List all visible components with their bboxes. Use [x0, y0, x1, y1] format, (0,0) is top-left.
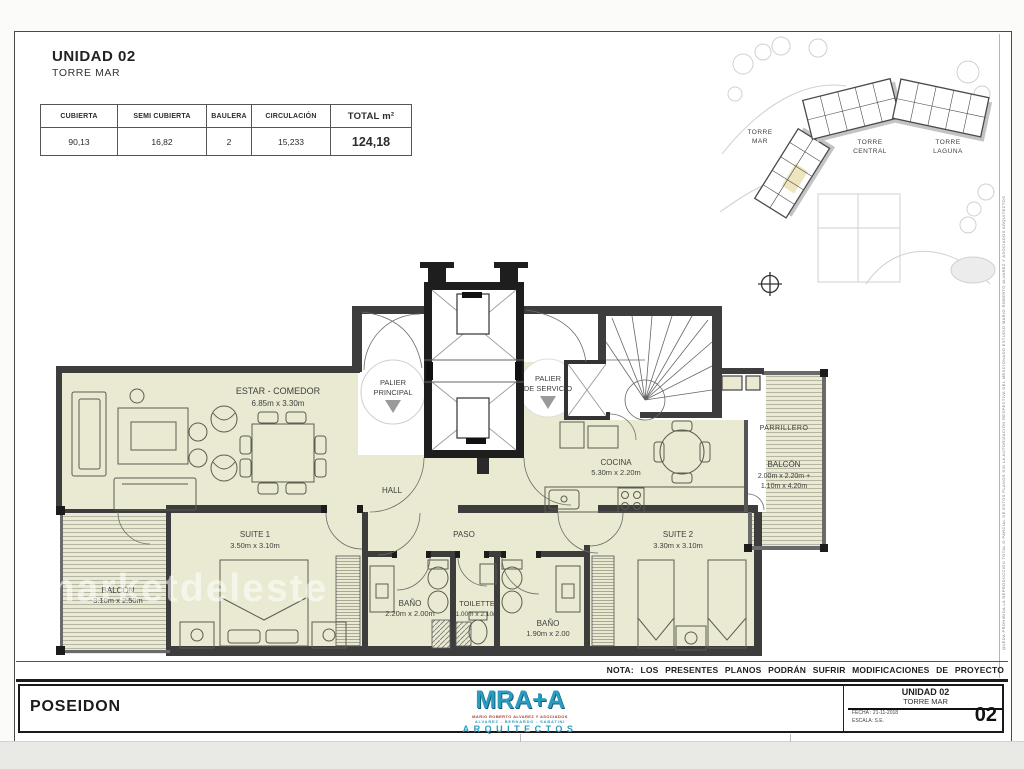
label-balcon-este-dims1: 2.00m x 2.20m + — [758, 473, 810, 480]
plan-bottom-border — [16, 679, 1008, 682]
grill-counter — [722, 376, 742, 390]
nota-strip-line — [16, 661, 1008, 662]
duct — [432, 620, 450, 648]
label-balcon-oeste-dims: 3.10m x 2.50m — [93, 596, 143, 605]
architect-logo: MRA+A MARIO ROBERTO ALVAREZ Y ASOCIADOS … — [455, 688, 585, 734]
label-toilette: TOILETTE — [459, 599, 495, 608]
service-elevator — [566, 362, 608, 418]
title-block: UNIDAD 02 TORRE MAR FECHA : 21-11-2018 E… — [843, 686, 1007, 731]
logo-subline3: ARQUITECTOS — [455, 725, 585, 734]
title-block-unit: UNIDAD 02 — [844, 687, 1007, 697]
label-hall: HALL — [382, 486, 403, 495]
closet-suite1 — [336, 556, 360, 646]
nota-text: NOTA: LOS PRESENTES PLANOS PODRÁN SUFRIR… — [520, 665, 1004, 675]
floor-plan: ESTAR - COMEDOR 6.85m x 3.30m PALIER PRI… — [0, 0, 1024, 768]
label-bano1-dims: 2.20m x 2.00m — [385, 609, 435, 618]
project-name: POSEIDON — [30, 698, 121, 716]
label-palier-principal2: PRINCIPAL — [373, 388, 412, 397]
label-paso: PASO — [453, 530, 475, 539]
title-block-fecha: FECHA : 21-11-2018 — [852, 710, 898, 718]
stairs — [606, 316, 712, 420]
side-disclaimer: QUEDA PROHIBIDA LA REPRODUCCIÓN TOTAL O … — [1001, 50, 1006, 650]
elevator-core — [424, 282, 524, 474]
label-cocina: COCINA — [600, 458, 632, 467]
label-balcon-este-dims2: 1.10m x 4.20m — [761, 483, 807, 490]
closet-suite2 — [592, 556, 614, 646]
label-estar: ESTAR - COMEDOR — [236, 386, 321, 396]
label-bano2: BAÑO — [537, 619, 560, 628]
label-palier-servicio2: DE SERVICIO — [524, 384, 572, 393]
elevator-cab-icon — [457, 294, 489, 334]
fold-mark — [520, 734, 521, 742]
label-bano2-dims: 1.90m x 2.00 — [526, 629, 569, 638]
label-cocina-dims: 5.30m x 2.20m — [591, 468, 641, 477]
label-parrillero: PARRILLERO — [760, 425, 809, 432]
label-estar-dims: 6.85m x 3.30m — [252, 399, 305, 408]
label-suite2-dims: 3.30m x 3.10m — [653, 541, 703, 550]
label-suite2: SUITE 2 — [663, 530, 694, 539]
page: { "header": { "title": "UNIDAD 02", "sub… — [0, 0, 1024, 768]
elevator-cab-icon — [457, 398, 489, 438]
label-bano1: BAÑO — [399, 599, 422, 608]
title-block-escala: ESCALA: S.E. — [852, 718, 898, 726]
label-balcon-este: BALCÓN — [768, 460, 801, 469]
label-palier-servicio: PALIER — [535, 374, 562, 383]
label-suite1-dims: 3.50m x 3.10m — [230, 541, 280, 550]
label-toilette-dims: 1.00m x 2.10m — [456, 611, 499, 618]
grill-counter — [746, 376, 760, 390]
fold-mark — [790, 734, 791, 742]
label-balcon-oeste: BALCÓN — [102, 586, 135, 595]
sheet-number: 02 — [975, 704, 997, 727]
label-palier-principal: PALIER — [380, 378, 407, 387]
logo-brand: MRA+A — [455, 688, 585, 713]
label-suite1: SUITE 1 — [240, 530, 271, 539]
